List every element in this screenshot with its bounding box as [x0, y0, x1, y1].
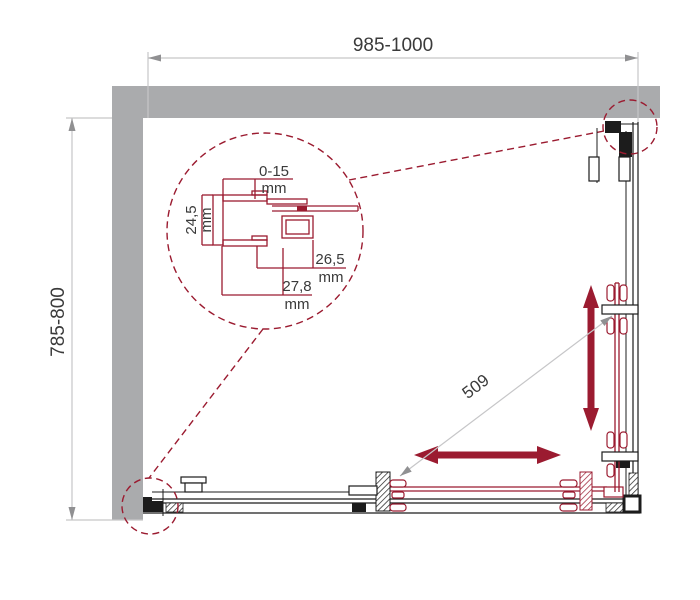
- leader-line-top-right: [349, 131, 604, 180]
- wall-top: [112, 86, 660, 118]
- diagonal-dimension-label: 509: [459, 370, 493, 402]
- shower-enclosure-plan-drawing: 985-1000 785-800: [0, 0, 700, 600]
- wall-left: [112, 86, 143, 520]
- detail-callout: [122, 100, 657, 534]
- detail-outer-width-unit: mm: [285, 296, 310, 313]
- detail-profile-depth-unit: mm: [198, 208, 215, 233]
- drawing-canvas: 985-1000 785-800: [0, 0, 700, 600]
- detail-outer-width-value: 27,8: [282, 278, 311, 295]
- detail-wall-gap-value: 0-15: [259, 163, 289, 180]
- depth-dimension-label: 785-800: [48, 287, 69, 357]
- detail-wall-gap-unit: mm: [262, 180, 287, 197]
- sliding-door-bottom: [349, 472, 623, 512]
- slide-arrow-vertical: [583, 285, 599, 431]
- leader-line-bottom-left: [149, 329, 263, 478]
- width-dimension-label: 985-1000: [353, 35, 433, 56]
- detail-inner-width-value: 26,5: [315, 251, 344, 268]
- detail-inner-width-unit: mm: [319, 269, 344, 286]
